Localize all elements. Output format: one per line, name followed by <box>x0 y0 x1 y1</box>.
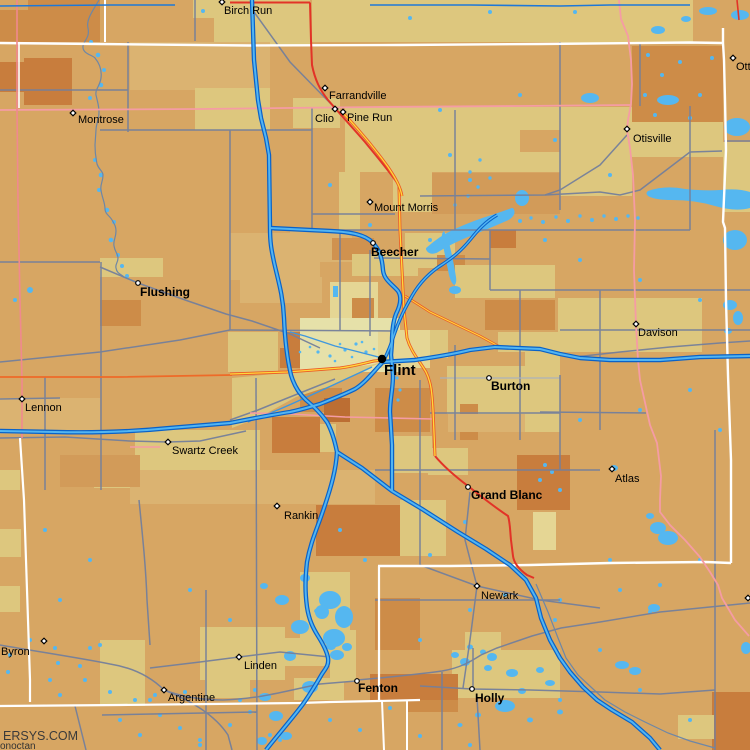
svg-text:Beecher: Beecher <box>371 245 419 259</box>
svg-text:Otter: Otter <box>736 61 750 73</box>
svg-text:Holly: Holly <box>475 691 505 705</box>
svg-text:Mount Morris: Mount Morris <box>374 202 439 214</box>
svg-text:Newark: Newark <box>481 590 519 602</box>
svg-text:onoctan: onoctan <box>0 741 36 750</box>
svg-text:Argentine: Argentine <box>168 692 215 704</box>
svg-text:Clio: Clio <box>315 113 334 125</box>
svg-text:Grand Blanc: Grand Blanc <box>471 488 543 502</box>
svg-text:Fenton: Fenton <box>358 681 398 695</box>
svg-text:Birch Run: Birch Run <box>224 5 272 17</box>
svg-text:Montrose: Montrose <box>78 114 124 126</box>
svg-text:Pine Run: Pine Run <box>347 112 392 124</box>
svg-text:Flushing: Flushing <box>140 285 190 299</box>
svg-text:Farrandville: Farrandville <box>329 90 386 102</box>
svg-text:Burton: Burton <box>491 379 530 393</box>
svg-text:Swartz Creek: Swartz Creek <box>172 445 239 457</box>
svg-text:Davison: Davison <box>638 327 678 339</box>
svg-text:Atlas: Atlas <box>615 473 640 485</box>
svg-text:Linden: Linden <box>244 660 277 672</box>
svg-text:Lennon: Lennon <box>25 402 62 414</box>
svg-text:Otisville: Otisville <box>633 133 672 145</box>
svg-text:Flint: Flint <box>384 362 416 379</box>
svg-text:Rankin: Rankin <box>284 510 318 522</box>
svg-text:Byron: Byron <box>1 646 30 658</box>
